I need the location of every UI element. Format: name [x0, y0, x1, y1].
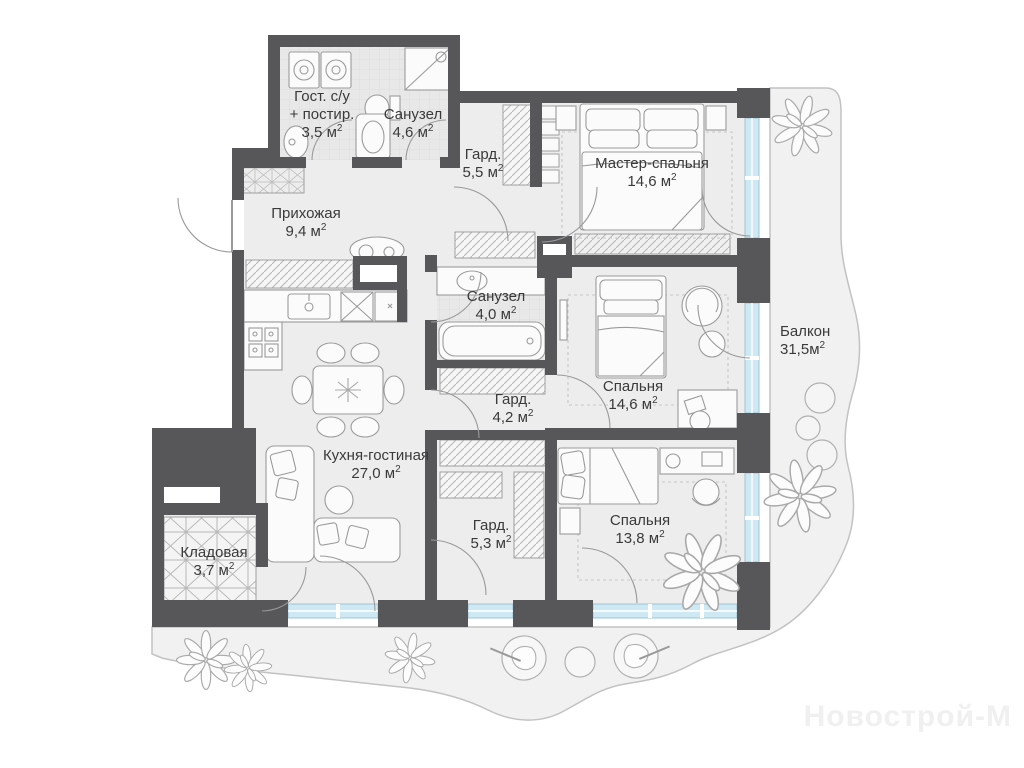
room-name: Гост. с/у: [294, 88, 350, 105]
floorplan-page: Гост. с/у + постир. 3,5 м2 Санузел 4,6 м…: [0, 0, 1024, 768]
desk-chair-2: [693, 479, 719, 505]
room-name: Прихожая: [271, 205, 341, 222]
room-name: Спальня: [603, 378, 663, 395]
room-area: 31,5м: [780, 341, 820, 358]
room-area: 14,6 м: [627, 173, 671, 190]
room-name: Санузел: [384, 106, 442, 123]
room-area: 4,6 м: [393, 124, 428, 141]
room-area: 5,3 м: [471, 535, 506, 552]
room-area: 5,5 м: [463, 164, 498, 181]
entry-door: [178, 198, 232, 252]
room-label-bedroom-2: Спальня 13,8 м2: [610, 512, 670, 548]
room-area: 27,0 м: [351, 465, 395, 482]
room-label-storage: Кладовая 3,7 м2: [180, 544, 247, 580]
room-name: Балкон: [780, 323, 830, 340]
room-label-wardrobe-3: Гард. 5,3 м2: [471, 517, 512, 553]
nightstand: [560, 508, 580, 534]
room-name: Гард.: [465, 146, 502, 163]
terrace-table: [565, 647, 595, 677]
room-name: Кладовая: [180, 544, 247, 561]
area-sup: 2: [428, 123, 434, 134]
area-sup: 2: [337, 123, 343, 134]
room-area: 4,2 м: [493, 409, 528, 426]
armchair: [682, 286, 722, 326]
room-label-bathroom-1: Санузел 4,6 м2: [384, 106, 442, 142]
room-name: Гард.: [473, 517, 510, 534]
area-sup: 2: [511, 305, 517, 316]
area-sup: 2: [498, 163, 504, 174]
desk-2: [660, 448, 734, 474]
room-area: 4,0 м: [476, 306, 511, 323]
room-area: 3,5 м: [302, 124, 337, 141]
floorplan-svg: [0, 0, 1024, 768]
room-name: Гард.: [495, 391, 532, 408]
area-sup: 2: [659, 529, 665, 540]
room-area: 14,6 м: [608, 396, 652, 413]
room-label-bathroom-2: Санузел 4,0 м2: [467, 288, 525, 324]
pouf: [699, 331, 725, 357]
watermark: Новострой-М: [804, 700, 1012, 734]
area-sup: 2: [395, 464, 401, 475]
area-sup: 2: [820, 340, 826, 351]
area-sup: 2: [321, 222, 327, 233]
shower: [405, 48, 450, 90]
tv: [560, 300, 567, 340]
room-label-guest-wc: Гост. с/у + постир. 3,5 м2: [290, 88, 355, 142]
room-name: Спальня: [610, 512, 670, 529]
area-sup: 2: [506, 534, 512, 545]
room-label-wardrobe-1: Гард. 5,5 м2: [463, 146, 504, 182]
room-name: + постир.: [290, 106, 355, 123]
room-name: Мастер-спальня: [595, 155, 709, 172]
entry-mat: [238, 165, 304, 193]
coffee-table: [325, 486, 353, 514]
room-label-hallway: Прихожая 9,4 м2: [271, 205, 341, 241]
room-area: 9,4 м: [286, 223, 321, 240]
room-label-bedroom-1: Спальня 14,6 м2: [603, 378, 663, 414]
room-label-wardrobe-2: Гард. 4,2 м2: [493, 391, 534, 427]
bathtub-icon: [439, 322, 545, 360]
area-sup: 2: [528, 408, 534, 419]
room-label-kitchen-living: Кухня-гостиная 27,0 м2: [323, 447, 429, 483]
room-label-balcony: Балкон 31,5м2: [780, 323, 830, 359]
room-name: Кухня-гостиная: [323, 447, 429, 464]
area-sup: 2: [229, 561, 235, 572]
room-name: Санузел: [467, 288, 525, 305]
room-area: 3,7 м: [194, 562, 229, 579]
room-label-master-bedroom: Мастер-спальня 14,6 м2: [595, 155, 709, 191]
area-sup: 2: [671, 172, 677, 183]
room-area: 13,8 м: [615, 530, 659, 547]
area-sup: 2: [652, 395, 658, 406]
